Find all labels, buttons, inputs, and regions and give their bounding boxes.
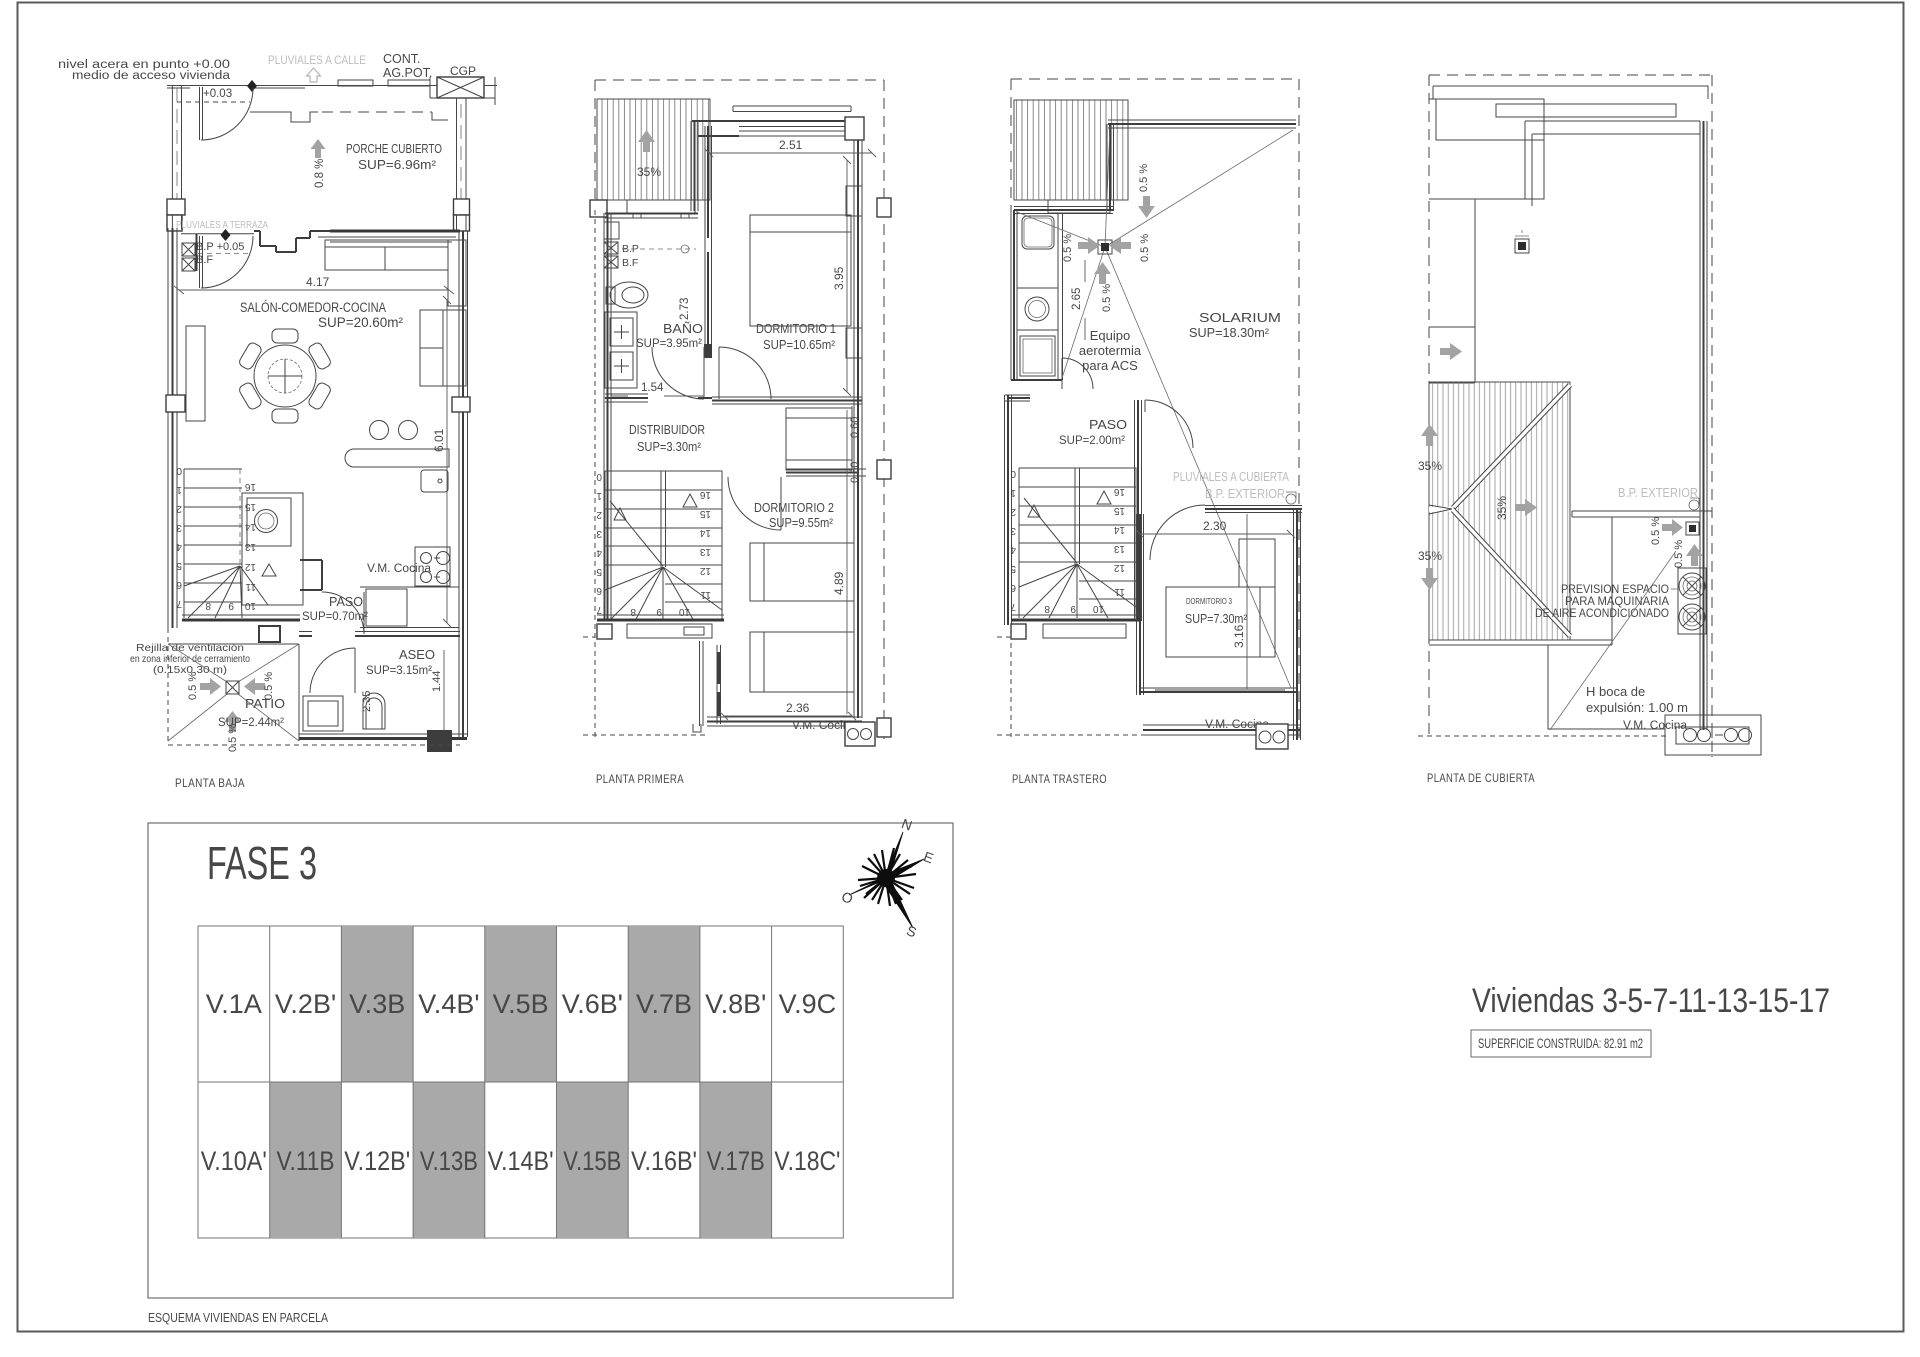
svg-text:0.5 %: 0.5 % xyxy=(1673,540,1685,568)
svg-text:medio de acceso vivienda: medio de acceso vivienda xyxy=(72,70,231,82)
svg-text:35%: 35% xyxy=(637,165,661,179)
svg-text:PLUVIALES A CUBIERTA: PLUVIALES A CUBIERTA xyxy=(1173,470,1290,484)
svg-text:V.3B: V.3B xyxy=(349,989,405,1019)
svg-text:PASO: PASO xyxy=(1089,418,1127,432)
svg-text:0.5 %: 0.5 % xyxy=(1062,234,1074,262)
svg-text:Equipo: Equipo xyxy=(1090,328,1130,343)
svg-text:3.95: 3.95 xyxy=(832,266,846,290)
svg-text:V.11B: V.11B xyxy=(277,1146,335,1176)
svg-text:4: 4 xyxy=(596,547,602,558)
svg-text:V.10A': V.10A' xyxy=(201,1146,267,1176)
svg-text:V.6B': V.6B' xyxy=(562,989,623,1019)
svg-text:CGP: CGP xyxy=(450,64,476,78)
svg-text:DORMITORIO 3: DORMITORIO 3 xyxy=(1186,597,1232,606)
svg-text:SOLARIUM: SOLARIUM xyxy=(1199,310,1281,325)
svg-text:35%: 35% xyxy=(1418,549,1442,563)
svg-text:0.5 %: 0.5 % xyxy=(1139,234,1151,262)
svg-text:SUP=18.30m²: SUP=18.30m² xyxy=(1189,326,1269,340)
svg-text:12: 12 xyxy=(699,565,711,576)
svg-text:DORMITORIO 1: DORMITORIO 1 xyxy=(756,321,836,336)
svg-text:6: 6 xyxy=(176,579,182,590)
svg-text:2.36: 2.36 xyxy=(786,701,810,715)
svg-text:4: 4 xyxy=(176,541,182,552)
svg-text:PLANTA DE CUBIERTA: PLANTA DE CUBIERTA xyxy=(1427,771,1535,785)
svg-text:V.8B': V.8B' xyxy=(705,989,766,1019)
svg-text:ESQUEMA VIVIENDAS EN PARCELA: ESQUEMA VIVIENDAS EN PARCELA xyxy=(148,1310,328,1325)
svg-text:8: 8 xyxy=(205,600,211,611)
svg-text:11: 11 xyxy=(700,589,711,600)
svg-text:13: 13 xyxy=(699,546,711,557)
svg-text:1: 1 xyxy=(176,484,182,495)
svg-text:V.M. Cocina: V.M. Cocina xyxy=(1623,720,1688,732)
svg-text:H boca de: H boca de xyxy=(1586,684,1645,699)
svg-text:V.M. Cocina: V.M. Cocina xyxy=(367,563,432,575)
svg-text:B.P. EXTERIOR: B.P. EXTERIOR xyxy=(1205,487,1285,501)
svg-text:4.89: 4.89 xyxy=(832,571,846,595)
svg-text:V.7B: V.7B xyxy=(636,989,692,1019)
svg-text:PARA MAQUINARIA: PARA MAQUINARIA xyxy=(1565,596,1669,608)
svg-text:35%: 35% xyxy=(1495,496,1509,520)
svg-text:2.73: 2.73 xyxy=(679,298,691,320)
svg-text:SUP=9.55m²: SUP=9.55m² xyxy=(769,516,833,530)
svg-text:Viviendas 3-5-7-11-13-15-17: Viviendas 3-5-7-11-13-15-17 xyxy=(1472,982,1830,1020)
svg-text:PASO: PASO xyxy=(329,595,363,609)
svg-text:SUP=6.96m²: SUP=6.96m² xyxy=(358,157,437,172)
svg-text:para ACS: para ACS xyxy=(1082,358,1138,373)
svg-text:V.17B: V.17B xyxy=(707,1146,765,1176)
svg-text:B.F: B.F xyxy=(622,257,638,269)
svg-text:5: 5 xyxy=(176,560,182,571)
svg-text:3.16: 3.16 xyxy=(1232,624,1246,648)
svg-text:AG.POT.: AG.POT. xyxy=(383,66,432,80)
svg-text:V.12B': V.12B' xyxy=(344,1146,410,1176)
svg-text:FASE 3: FASE 3 xyxy=(207,837,317,889)
svg-text:V.4B': V.4B' xyxy=(418,989,479,1019)
svg-text:15: 15 xyxy=(699,508,711,519)
svg-text:0.5 %: 0.5 % xyxy=(1138,164,1150,192)
svg-text:CONT.: CONT. xyxy=(383,52,421,66)
svg-text:5: 5 xyxy=(596,566,602,577)
svg-text:2.35: 2.35 xyxy=(361,691,373,712)
svg-text:SALÓN-COMEDOR-COCINA: SALÓN-COMEDOR-COCINA xyxy=(240,300,386,315)
svg-text:PLANTA PRIMERA: PLANTA PRIMERA xyxy=(596,772,684,786)
svg-text:SUP=20.60m²: SUP=20.60m² xyxy=(318,315,403,330)
svg-text:PORCHE CUBIERTO: PORCHE CUBIERTO xyxy=(346,141,442,156)
svg-text:PATIO: PATIO xyxy=(245,697,285,711)
svg-text:0.60: 0.60 xyxy=(849,417,861,438)
svg-text:1.54: 1.54 xyxy=(641,382,664,394)
svg-text:SUP=7.30m²: SUP=7.30m² xyxy=(1185,612,1247,626)
svg-text:7: 7 xyxy=(176,598,182,609)
svg-text:2: 2 xyxy=(176,503,182,514)
svg-text:ASEO: ASEO xyxy=(399,648,435,662)
svg-text:SUP=10.65m²: SUP=10.65m² xyxy=(763,338,835,352)
svg-text:SUP=2.00m²: SUP=2.00m² xyxy=(1059,433,1125,447)
svg-text:12: 12 xyxy=(244,561,256,572)
svg-text:SUP=2.44m²: SUP=2.44m² xyxy=(218,715,284,729)
svg-text:6: 6 xyxy=(596,585,602,596)
svg-text:V.16B': V.16B' xyxy=(631,1146,697,1176)
svg-text:3: 3 xyxy=(596,528,602,539)
svg-text:DORMITORIO 2: DORMITORIO 2 xyxy=(754,500,834,515)
svg-text:35%: 35% xyxy=(1418,459,1442,473)
svg-text:2.65: 2.65 xyxy=(1071,288,1083,310)
svg-text:4.17: 4.17 xyxy=(306,275,330,289)
svg-text:SUP=0.70m²: SUP=0.70m² xyxy=(302,609,368,623)
svg-text:B.P. EXTERIOR: B.P. EXTERIOR xyxy=(1618,486,1698,500)
svg-text:9: 9 xyxy=(228,600,234,611)
svg-text:V.2B': V.2B' xyxy=(275,989,336,1019)
svg-text:0.5 %: 0.5 % xyxy=(1101,284,1113,312)
svg-text:V.13B: V.13B xyxy=(420,1146,478,1176)
svg-text:aerotermia: aerotermia xyxy=(1079,343,1142,358)
svg-text:0: 0 xyxy=(176,465,182,476)
svg-text:PLUVIALES A CALLE: PLUVIALES A CALLE xyxy=(268,53,366,67)
svg-text:PREVISION ESPACIO: PREVISION ESPACIO xyxy=(1561,584,1669,596)
svg-text:16: 16 xyxy=(244,481,256,492)
svg-text:2: 2 xyxy=(596,509,602,520)
svg-text:0.5 %: 0.5 % xyxy=(187,672,199,700)
svg-text:15: 15 xyxy=(244,501,256,512)
svg-text:V.15B: V.15B xyxy=(563,1146,621,1176)
svg-text:0.5 %: 0.5 % xyxy=(1650,517,1662,545)
svg-text:B.F: B.F xyxy=(196,254,213,266)
svg-text:V.18C': V.18C' xyxy=(774,1146,840,1176)
svg-text:PLUVIALES A TERRAZA: PLUVIALES A TERRAZA xyxy=(176,220,268,231)
svg-text:V.1A: V.1A xyxy=(206,989,262,1019)
svg-text:SUP=3.15m²: SUP=3.15m² xyxy=(366,663,432,677)
svg-text:16: 16 xyxy=(699,489,711,500)
svg-text:0.5 %: 0.5 % xyxy=(263,672,275,700)
svg-text:SUPERFICIE CONSTRUIDA: 82.91 m: SUPERFICIE CONSTRUIDA: 82.91 m2 xyxy=(1478,1036,1643,1051)
svg-text:+0.03: +0.03 xyxy=(203,88,232,100)
svg-text:DISTRIBUIDOR: DISTRIBUIDOR xyxy=(629,422,705,437)
svg-text:V.9C: V.9C xyxy=(779,989,837,1019)
svg-text:1.44: 1.44 xyxy=(431,671,443,692)
svg-text:BAÑO: BAÑO xyxy=(663,322,703,336)
svg-text:SUP=3.30m²: SUP=3.30m² xyxy=(637,440,701,454)
svg-text:0: 0 xyxy=(596,471,602,482)
svg-text:2.51: 2.51 xyxy=(779,138,803,152)
svg-text:V.5B: V.5B xyxy=(493,989,549,1019)
svg-text:2.30: 2.30 xyxy=(1203,519,1227,533)
svg-text:14: 14 xyxy=(699,527,711,538)
svg-text:DE AIRE ACONDICIONADO: DE AIRE ACONDICIONADO xyxy=(1535,608,1669,620)
svg-text:6.01: 6.01 xyxy=(432,428,446,452)
svg-text:3: 3 xyxy=(176,522,182,533)
svg-text:B.P +0.05: B.P +0.05 xyxy=(196,241,244,253)
svg-text:SUP=3.95m²: SUP=3.95m² xyxy=(636,336,702,350)
svg-text:PLANTA BAJA: PLANTA BAJA xyxy=(175,776,245,790)
svg-text:0.8 %: 0.8 % xyxy=(314,159,326,188)
svg-text:expulsión: 1.00 m: expulsión: 1.00 m xyxy=(1586,700,1688,715)
svg-text:V.14B': V.14B' xyxy=(488,1146,554,1176)
svg-text:7: 7 xyxy=(596,604,602,615)
svg-text:1: 1 xyxy=(596,490,602,501)
svg-text:PLANTA TRASTERO: PLANTA TRASTERO xyxy=(1012,772,1107,786)
